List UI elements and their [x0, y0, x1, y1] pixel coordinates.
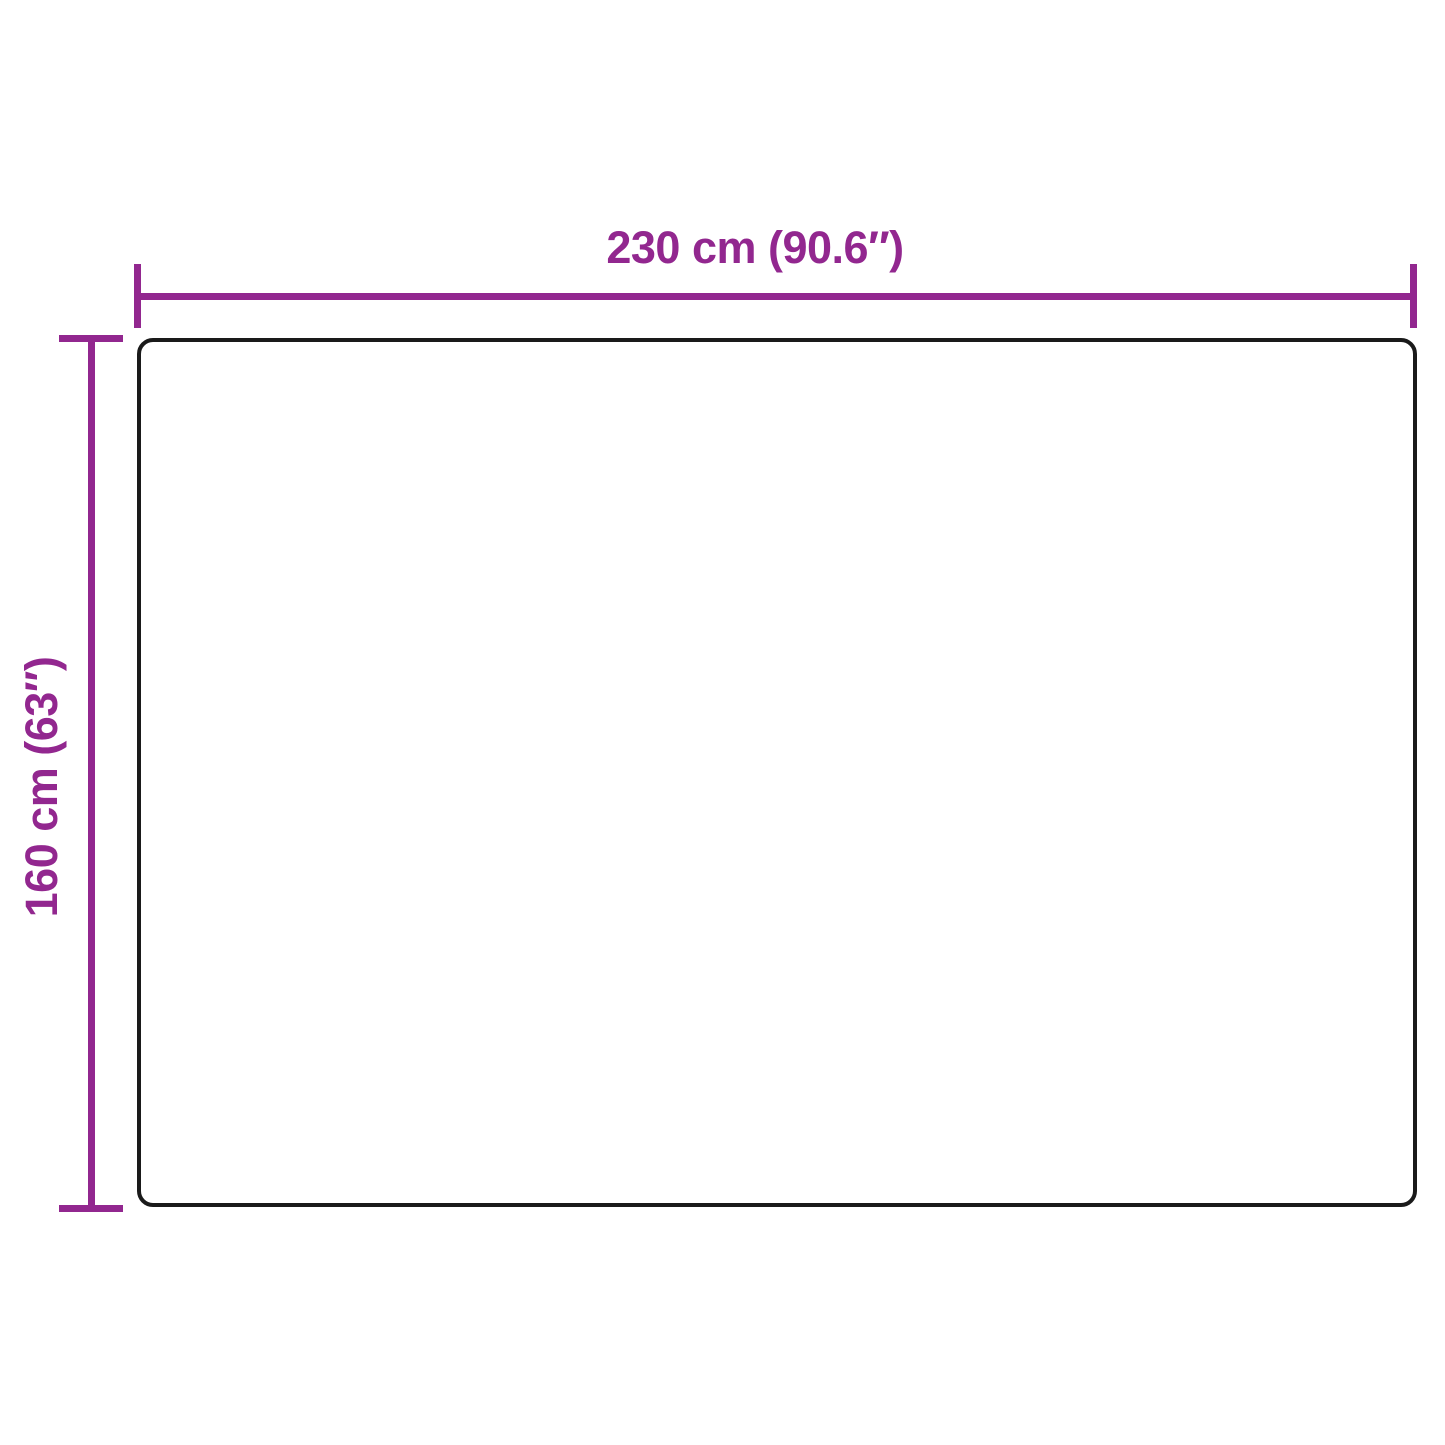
width-dimension-line [137, 293, 1416, 300]
dimension-diagram: 230 cm (90.6″) 160 cm (63″) [0, 0, 1445, 1445]
height-dimension-top-tick [59, 335, 123, 342]
height-dimension-label: 160 cm (63″) [16, 657, 68, 918]
width-dimension-left-tick [134, 264, 141, 328]
width-dimension-right-tick [1410, 264, 1417, 328]
height-dimension-line [88, 338, 95, 1209]
product-outline-rectangle [137, 338, 1417, 1207]
width-dimension-label: 230 cm (90.6″) [606, 222, 903, 274]
height-dimension-bottom-tick [59, 1205, 123, 1212]
